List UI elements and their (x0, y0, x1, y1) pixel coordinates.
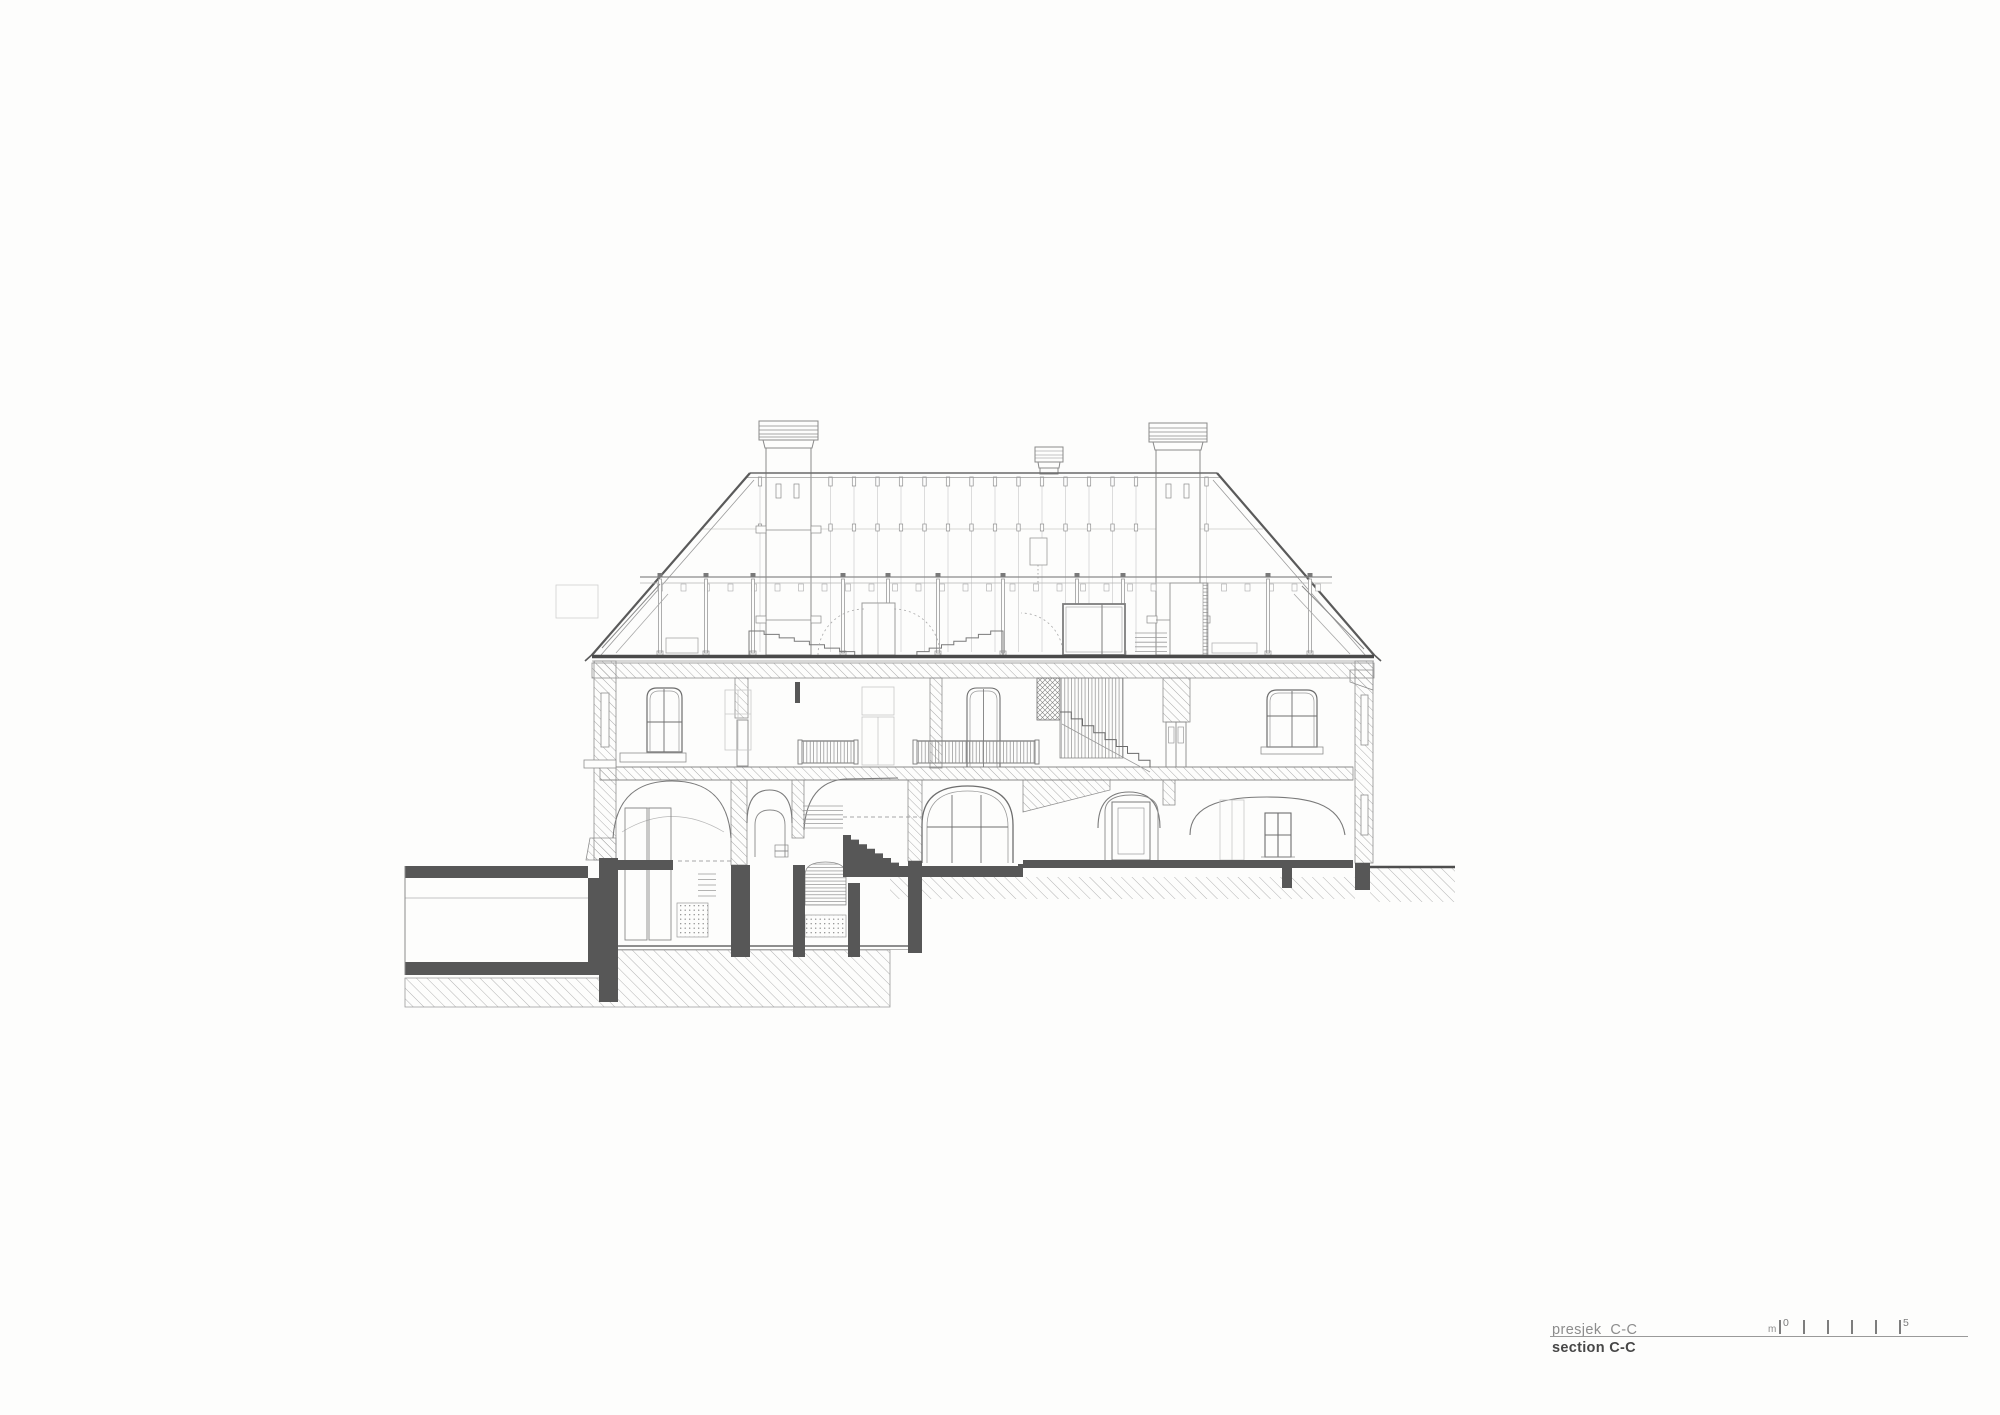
attic-floor-slab-hatch (592, 663, 1374, 678)
scale-tick (1803, 1320, 1805, 1334)
roof-slope-left (592, 473, 750, 655)
scale-tick (1851, 1320, 1853, 1334)
interior-door-right (1166, 722, 1186, 767)
balcony-railing-left (798, 740, 858, 764)
roof-rafter-lines (760, 479, 1207, 652)
title-rule (1550, 1336, 1968, 1337)
ground-floor-level (613, 778, 1368, 940)
ground-floor-right-window (1261, 813, 1295, 857)
stair-landing-block (1037, 678, 1060, 720)
left-cornice-ledge (584, 760, 616, 768)
foundation-left-wall (599, 858, 618, 1002)
balcony-railing-right (913, 740, 1039, 764)
scale-start-label: 0 (1783, 1317, 1789, 1329)
basement-dotted-patch-right (805, 915, 846, 937)
first-floor-level (584, 678, 1368, 780)
first-floor-tall-door (967, 688, 1000, 767)
section-drawing-canvas (0, 0, 2000, 1415)
footing-right-wall (1355, 863, 1370, 890)
scale-tick (1875, 1320, 1877, 1334)
basement-small-stair (698, 874, 716, 896)
attic-glazed-box (1063, 604, 1125, 655)
attic-bench (1212, 643, 1257, 653)
drawing-title-english: section C-C (1552, 1340, 1636, 1356)
basement-dotted-patch-left (677, 903, 708, 937)
ghost-balcony-door-A (862, 687, 894, 765)
chimney-small-center (1035, 447, 1063, 474)
left-annex-walls (405, 866, 600, 975)
roof-batten-ticks (758, 477, 1208, 486)
scale-tick (1899, 1320, 1901, 1334)
ghost-door-right (1220, 800, 1244, 860)
center-right-arched-door (1105, 795, 1158, 860)
scale-tick (1779, 1320, 1781, 1334)
interior-door-left (737, 720, 748, 766)
first-floor-left-window (620, 688, 686, 762)
roof-slope-right (1217, 473, 1374, 655)
scale-tick (1827, 1320, 1829, 1334)
stair-baluster-screen (1060, 678, 1123, 758)
ground-floor-stair-treads (803, 806, 843, 828)
dormer-ghost (556, 585, 598, 618)
attic-level (592, 538, 1374, 661)
attic-joist-ends (658, 584, 1321, 591)
attic-flue-box (1030, 538, 1047, 565)
scale-unit-label: m (1768, 1324, 1776, 1335)
attic-glazed-partition (1170, 583, 1207, 655)
first-floor-right-window (1261, 690, 1323, 754)
garden-room-slab (610, 860, 673, 870)
stair-poche-steps (843, 835, 899, 877)
big-arched-window (922, 786, 1013, 863)
filled-vault-opening (805, 862, 846, 905)
drawing-sheet: presjek C-C section C-C m 0 5 (0, 0, 2000, 1415)
slab-right (1023, 860, 1353, 868)
right-wall-slit-window-upper (1361, 695, 1368, 745)
attic-bleacher-steps-right (917, 631, 1003, 655)
left-wall-slit-window (601, 693, 609, 747)
niche-arched-door (755, 810, 788, 857)
chimney-left (756, 421, 821, 655)
garden-room-glazed-doors (625, 808, 671, 940)
roof-batten-squares (758, 524, 1208, 531)
earth-hatching (405, 867, 1455, 1007)
slab-mid (898, 866, 1023, 877)
attic-center-door (862, 603, 895, 655)
right-wall-slit-window-lower (1361, 795, 1368, 835)
first-floor-slab-hatch (600, 767, 1353, 780)
scale-end-label: 5 (1903, 1317, 1909, 1329)
